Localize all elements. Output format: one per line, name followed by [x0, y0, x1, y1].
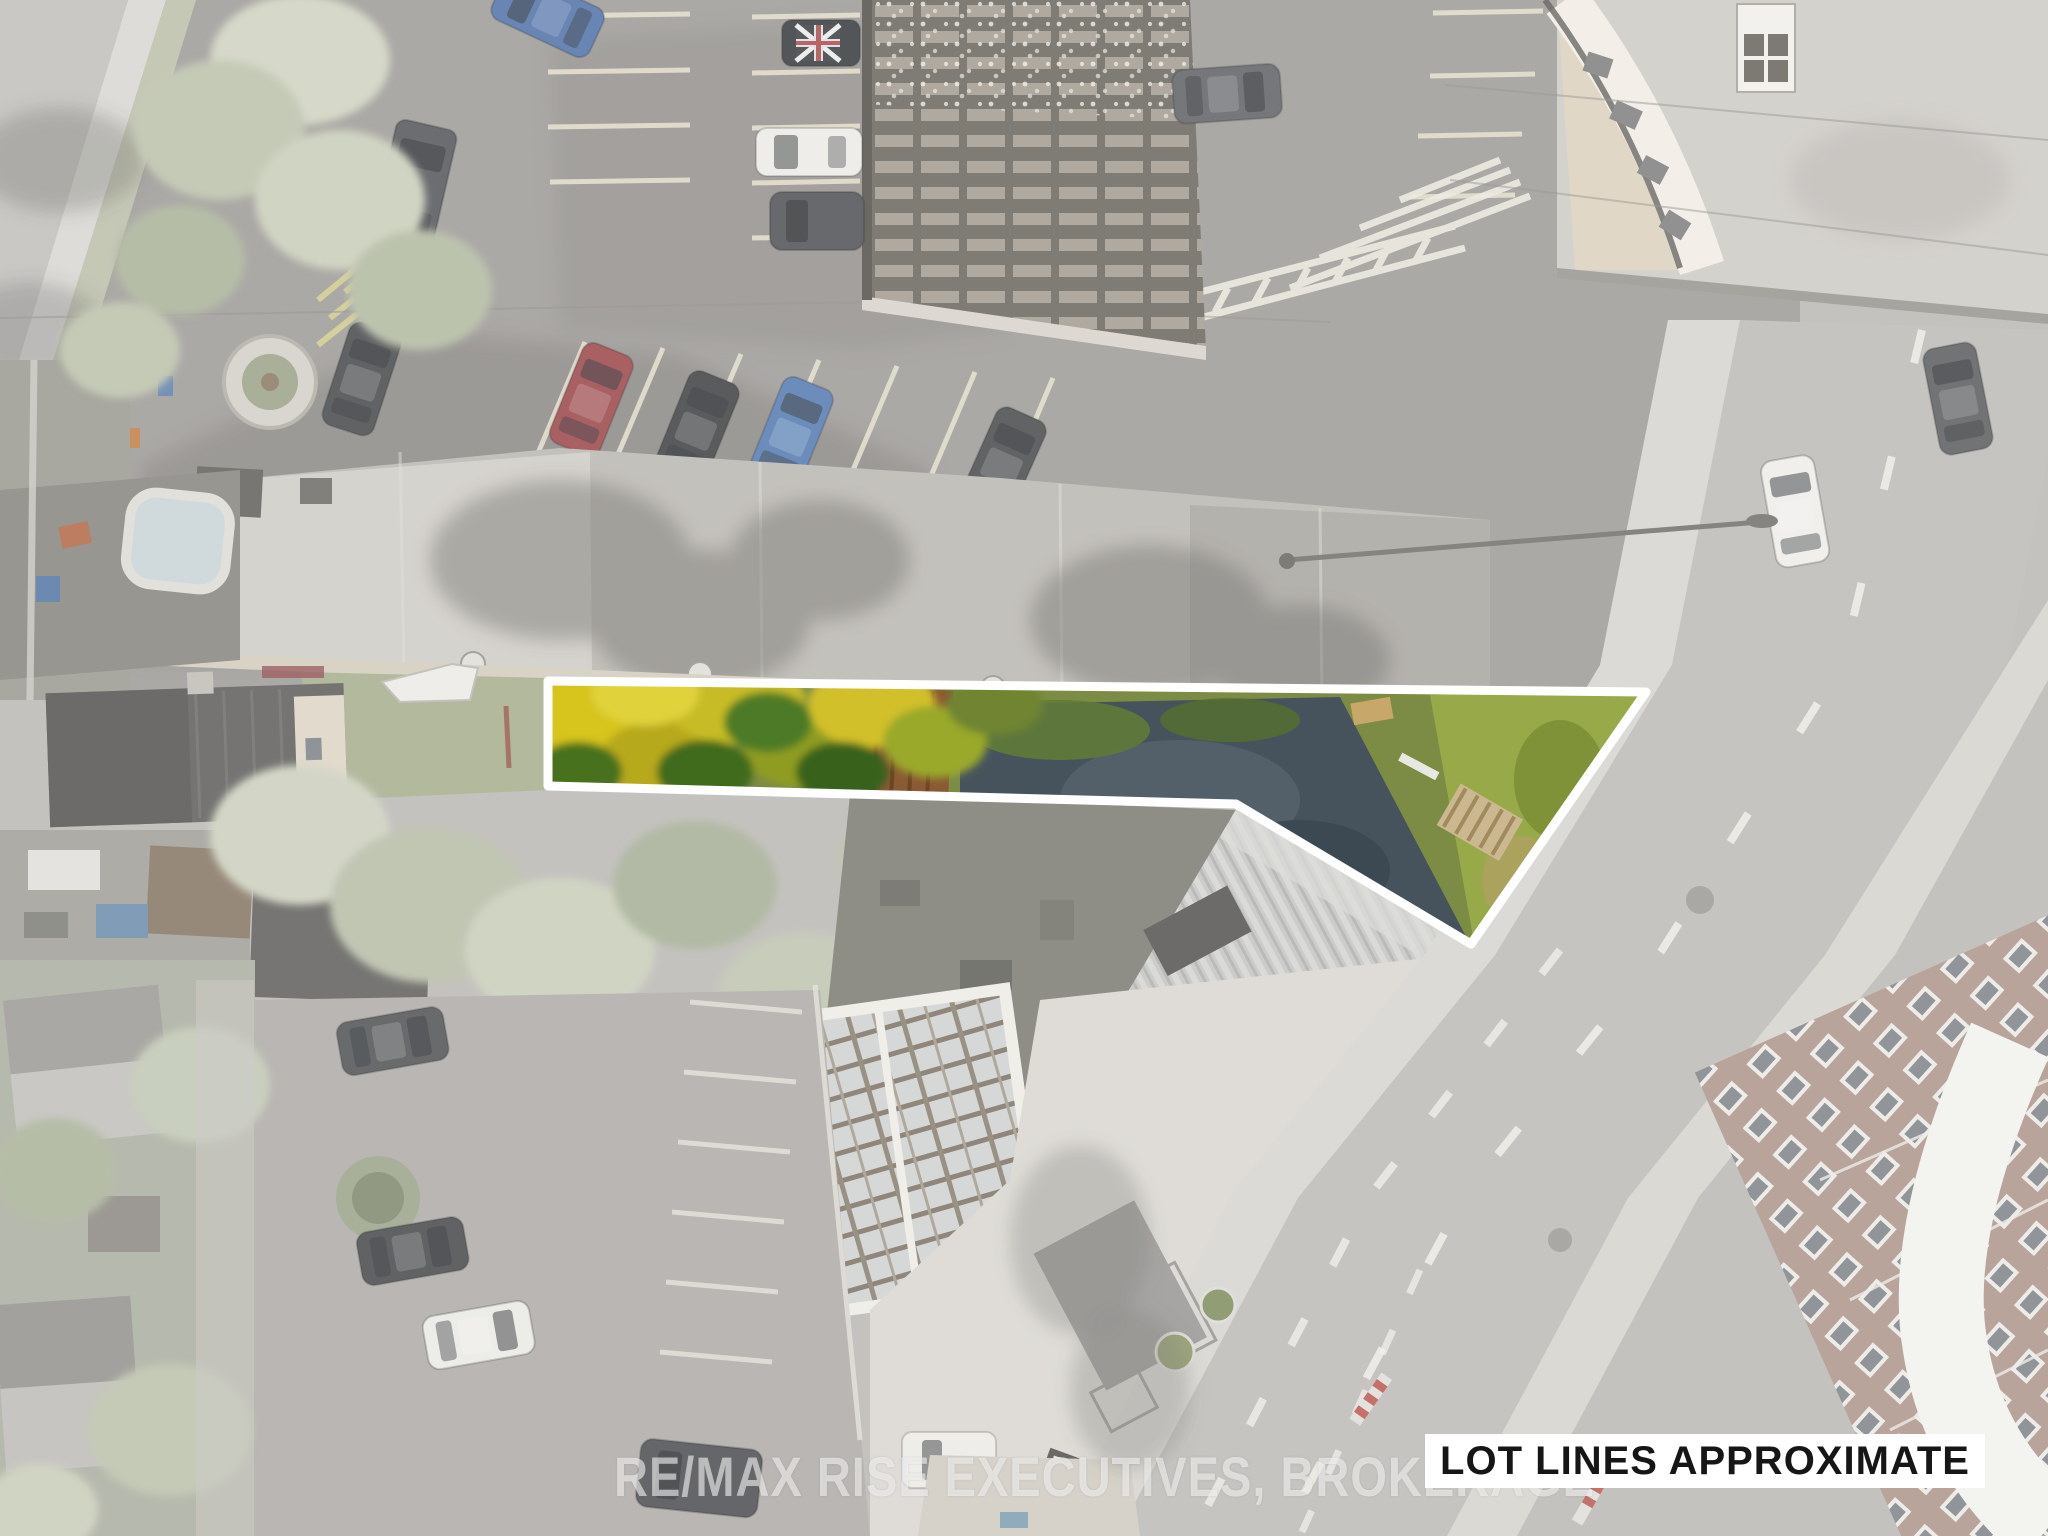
aerial-photo-canvas — [0, 0, 2048, 1536]
aerial-photo: RE/MAX RISE EXECUTIVES, BROKERAGE LOT LI… — [0, 0, 2048, 1536]
lot-lines-approximate-label: LOT LINES APPROXIMATE — [1425, 1434, 1985, 1488]
